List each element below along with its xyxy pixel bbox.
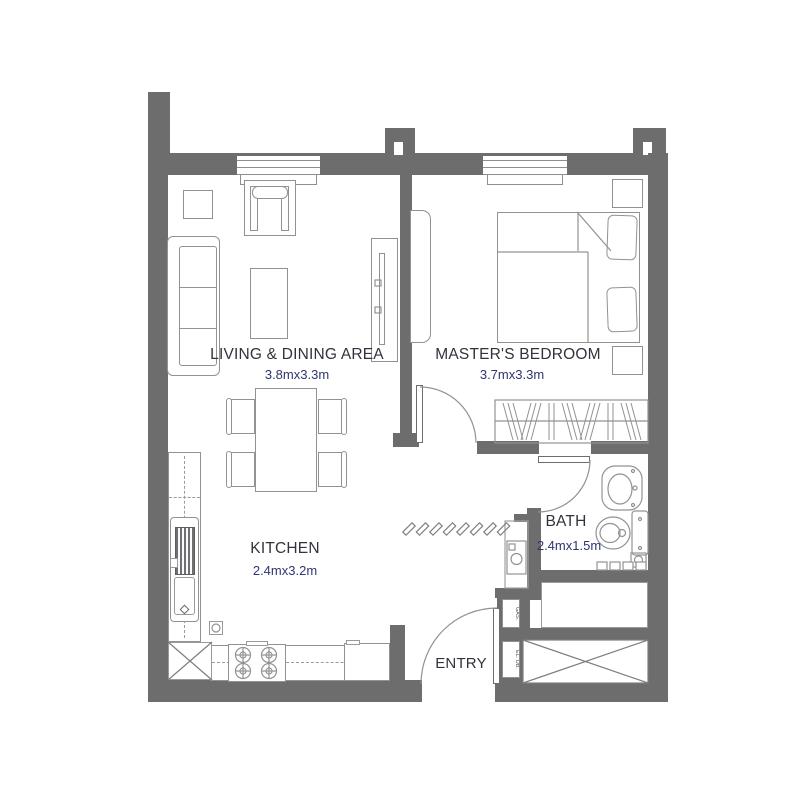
ceiling-hatch [403, 523, 510, 535]
room-label-living: LIVING & DINING AREA [210, 346, 384, 364]
floor-drain-kitchen [209, 621, 223, 635]
room-dim-bedroom: 3.7mx3.3m [480, 367, 544, 382]
window-bedroom-sill [487, 175, 563, 185]
wall-left [148, 153, 168, 702]
wall-shaft-top [530, 628, 648, 640]
dresser [410, 210, 431, 343]
utility-label-eldb: EL. DB. [502, 641, 520, 678]
duct-room [541, 582, 648, 628]
coffee-table [250, 268, 288, 339]
wall-bath-top [591, 441, 648, 454]
room-dim-bath: 2.4mx1.5m [537, 538, 601, 553]
room-label-entry: ENTRY [435, 655, 487, 672]
kitchen-faucet-icon [170, 558, 178, 568]
room-label-kitchen: KITCHEN [250, 540, 319, 558]
wall-mid-column-notch [394, 142, 403, 155]
window-living [237, 156, 320, 177]
nightstand [612, 179, 643, 208]
bath-threshold [597, 562, 646, 570]
dining-chair [318, 399, 344, 434]
wall-niche-bottom [495, 588, 541, 598]
room-dim-living: 3.8mx3.3m [265, 367, 329, 382]
floor-drain-bath [631, 553, 646, 567]
dining-chair [318, 452, 344, 487]
stove-handle [246, 641, 268, 646]
wardrobe [495, 400, 648, 443]
bedroom-door-leaf [416, 385, 423, 443]
dining-chair [229, 399, 255, 434]
fridge-handle [346, 640, 360, 645]
kitchen-sink-drainboard [175, 527, 195, 575]
bath-door-swing [538, 460, 590, 512]
nightstand [612, 346, 643, 375]
pillow [606, 286, 638, 332]
floor-plan: GAS. EL. DB. [0, 0, 800, 800]
entry-door-swing [421, 608, 497, 684]
room-label-bedroom: MASTER'S BEDROOM [435, 346, 600, 364]
side-table [183, 190, 213, 219]
wall-entry-stub [390, 625, 405, 682]
stove [228, 644, 286, 682]
wall-bottom-right [495, 682, 668, 702]
toilet [596, 511, 648, 555]
dining-table [255, 388, 317, 492]
room-label-bath: BATH [546, 513, 587, 531]
dining-chair [229, 452, 255, 487]
bath-sink [602, 466, 642, 510]
utility-label-gas: GAS. [502, 599, 520, 628]
window-bedroom [483, 156, 567, 177]
fridge [344, 643, 390, 681]
service-shaft [523, 640, 648, 683]
bedroom-door-swing [420, 387, 476, 443]
tv-icon [379, 253, 385, 345]
kitchen-corner-shaft [168, 642, 212, 680]
room-dim-kitchen: 2.4mx3.2m [253, 563, 317, 578]
wall-top-left-stub [148, 92, 170, 155]
entry-door-leaf [493, 608, 500, 684]
pillow [606, 214, 638, 260]
wall-niche-cap [514, 514, 540, 522]
wall-bedroom-bottom [477, 441, 539, 454]
wall-right [648, 153, 668, 702]
wall-bath-bottom [541, 570, 648, 582]
washing-machine [505, 521, 528, 588]
bath-door-leaf [538, 456, 590, 463]
kitchen-counter-divider [169, 497, 200, 498]
wall-bottom-left [148, 680, 422, 702]
wall-top [148, 153, 668, 175]
armchair [244, 180, 296, 236]
